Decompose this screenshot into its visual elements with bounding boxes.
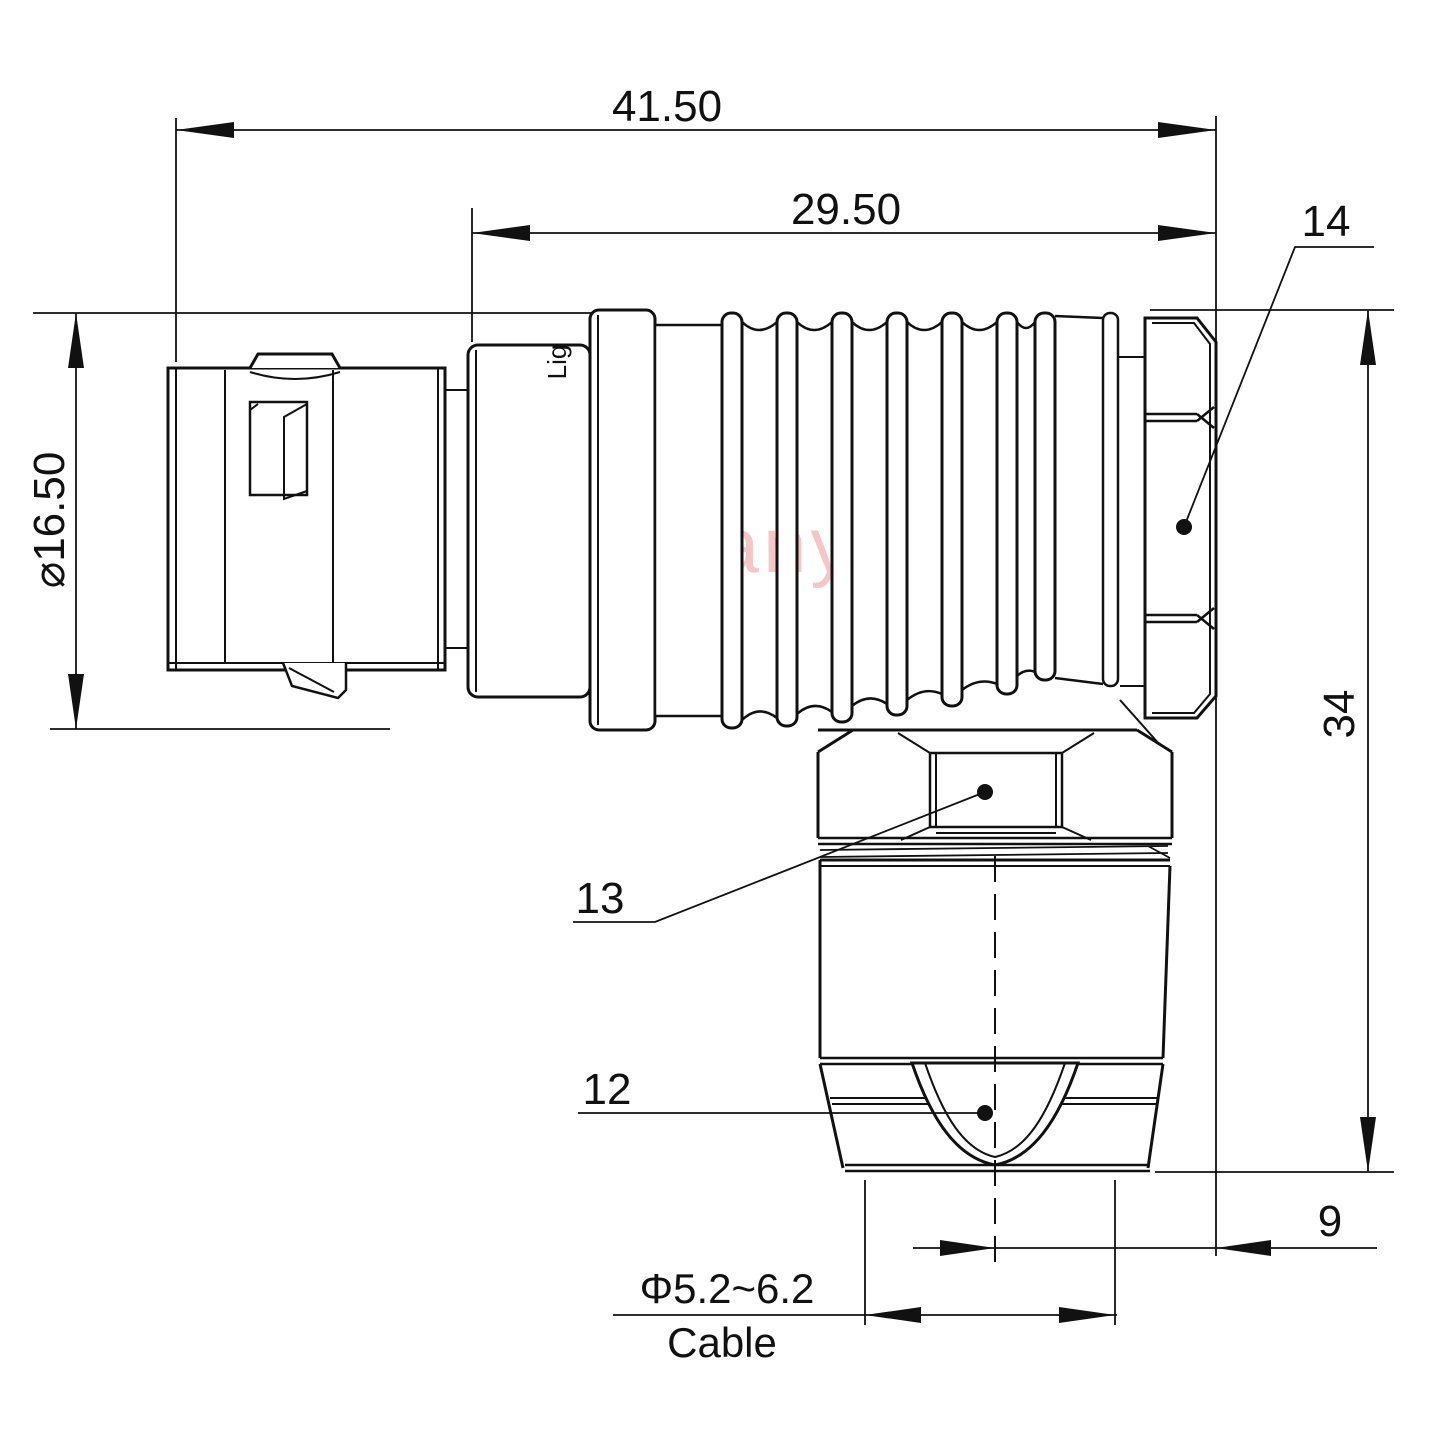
technical-drawing-page: Lightany 41.50 29.50 <box>0 0 1440 1440</box>
label-13: 13 <box>576 874 625 923</box>
arrowhead-right-icon <box>940 1240 995 1256</box>
leader-dot-icon <box>977 1105 993 1121</box>
arrowhead-right-icon <box>1059 1307 1115 1323</box>
cable-grommet <box>912 1063 1078 1165</box>
arrowhead-down-icon <box>1360 1117 1376 1172</box>
front-collar <box>590 310 722 730</box>
accordion-ribs <box>722 313 1145 728</box>
dim-shell-diameter: ⌀16.50 <box>25 313 84 729</box>
label-14: 14 <box>1302 197 1351 246</box>
elbow-hex-section <box>818 700 1172 858</box>
arrowhead-left-icon <box>472 225 530 241</box>
leader-dot-icon <box>1176 519 1192 535</box>
dim-rear-length: 29.50 <box>472 185 1216 241</box>
dim-offset-value: 9 <box>1318 1197 1342 1246</box>
dim-cable-range-value: Φ5.2~6.2 <box>640 1265 815 1312</box>
leader-dot-icon <box>977 784 993 800</box>
dim-cable-caption: Cable <box>667 1319 777 1366</box>
dim-offset: 9 <box>913 1197 1377 1256</box>
dim-height: 34 <box>1315 310 1376 1172</box>
dim-shell-diameter-value: ⌀16.50 <box>25 452 74 589</box>
bayonet-shell <box>168 354 468 698</box>
inner-body <box>468 345 590 697</box>
arrowhead-right-icon <box>1158 225 1216 241</box>
bayonet-slot <box>250 402 307 495</box>
arrowhead-left-icon <box>176 122 234 138</box>
arrowhead-up-icon <box>1360 310 1376 365</box>
arrowhead-up-icon <box>68 313 84 368</box>
label-12: 12 <box>583 1065 632 1114</box>
arrowhead-down-icon <box>68 674 84 729</box>
spanner-flat <box>930 753 1062 827</box>
connector-drawing: Lightany 41.50 29.50 <box>0 0 1440 1440</box>
arrowhead-left-icon <box>865 1307 921 1323</box>
brand-stamp: Lig <box>542 345 572 380</box>
dim-height-value: 34 <box>1315 690 1364 739</box>
dim-overall-length: 41.50 <box>176 82 1216 138</box>
arrowhead-right-icon <box>1158 122 1216 138</box>
dim-overall-length-value: 41.50 <box>612 82 722 131</box>
dim-rear-length-value: 29.50 <box>791 185 901 234</box>
extension-lines <box>33 116 1394 1325</box>
coupling-hex-nut <box>1145 318 1216 718</box>
arrowhead-left-icon <box>1216 1240 1271 1256</box>
